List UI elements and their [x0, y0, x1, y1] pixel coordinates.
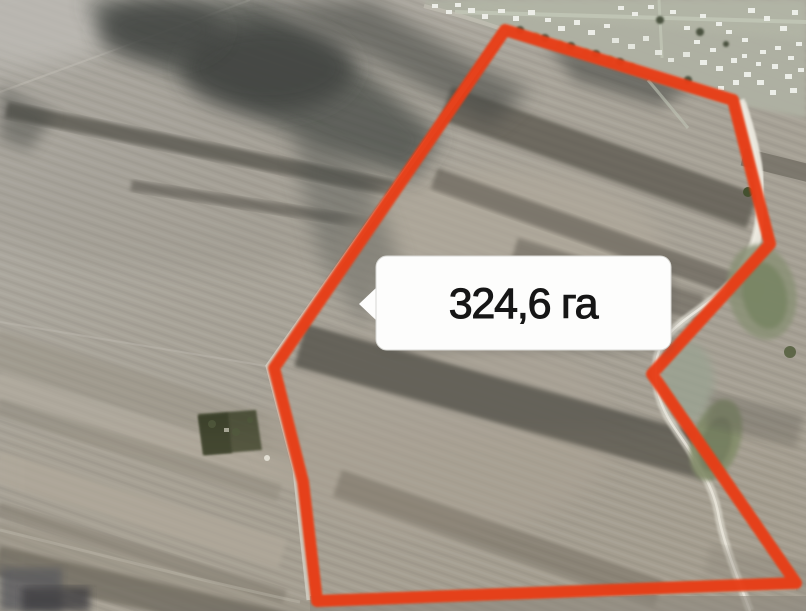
svg-text:324,6 га: 324,6 га — [449, 280, 599, 328]
